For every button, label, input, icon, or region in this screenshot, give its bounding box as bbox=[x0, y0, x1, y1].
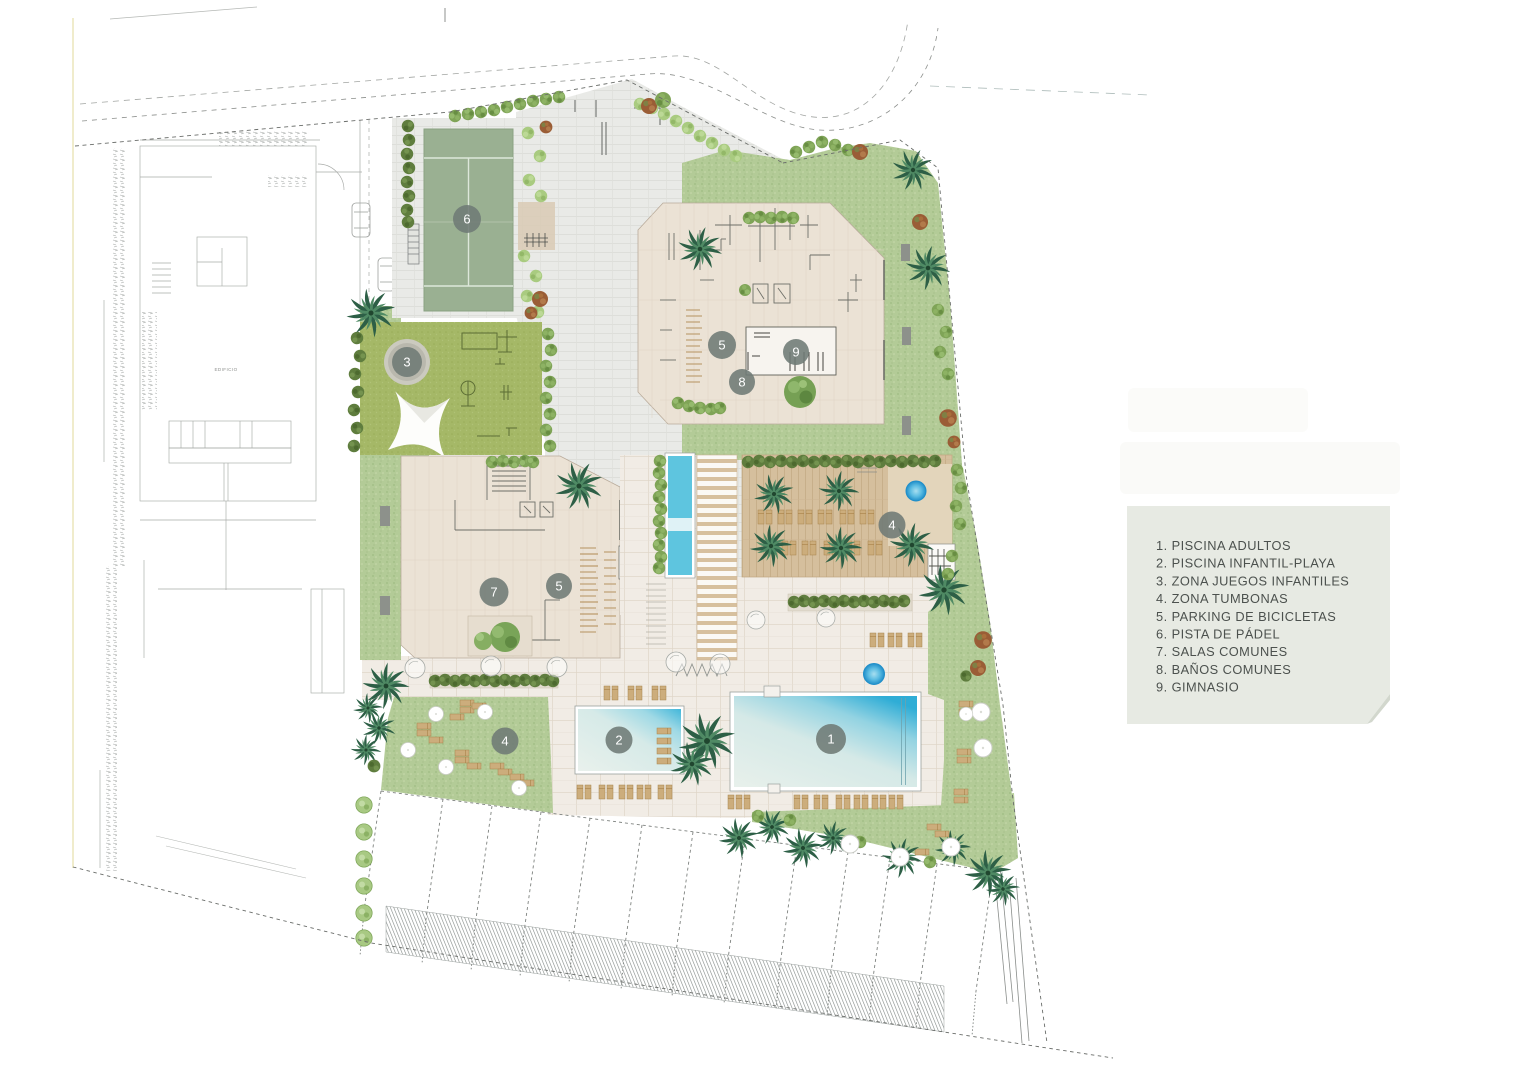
svg-text:3: 3 bbox=[403, 355, 410, 370]
svg-text:3. ZONA JUEGOS INFANTILES: 3. ZONA JUEGOS INFANTILES bbox=[1156, 573, 1349, 588]
svg-text:7: 7 bbox=[490, 585, 497, 600]
svg-text:EDIFICIO: EDIFICIO bbox=[214, 367, 237, 372]
svg-text:8: 8 bbox=[738, 375, 745, 390]
svg-text:5. PARKING DE BICICLETAS: 5. PARKING DE BICICLETAS bbox=[1156, 609, 1336, 624]
svg-text:9. GIMNASIO: 9. GIMNASIO bbox=[1156, 680, 1239, 695]
svg-text:5: 5 bbox=[718, 338, 725, 353]
svg-text:1: 1 bbox=[827, 732, 834, 747]
svg-text:8. BAÑOS COMUNES: 8. BAÑOS COMUNES bbox=[1156, 662, 1291, 677]
svg-text:9: 9 bbox=[792, 345, 799, 360]
svg-text:4. ZONA TUMBONAS: 4. ZONA TUMBONAS bbox=[1156, 591, 1288, 606]
svg-text:4: 4 bbox=[888, 518, 895, 533]
svg-text:5: 5 bbox=[555, 579, 562, 594]
svg-text:7. SALAS COMUNES: 7. SALAS COMUNES bbox=[1156, 644, 1288, 659]
svg-text:1. PISCINA ADULTOS: 1. PISCINA ADULTOS bbox=[1156, 538, 1291, 553]
svg-text:6: 6 bbox=[463, 212, 470, 227]
svg-text:6. PISTA DE PÁDEL: 6. PISTA DE PÁDEL bbox=[1156, 627, 1280, 642]
svg-text:2: 2 bbox=[615, 733, 622, 748]
svg-text:4: 4 bbox=[501, 734, 508, 749]
svg-text:2. PISCINA INFANTIL-PLAYA: 2. PISCINA INFANTIL-PLAYA bbox=[1156, 556, 1335, 571]
